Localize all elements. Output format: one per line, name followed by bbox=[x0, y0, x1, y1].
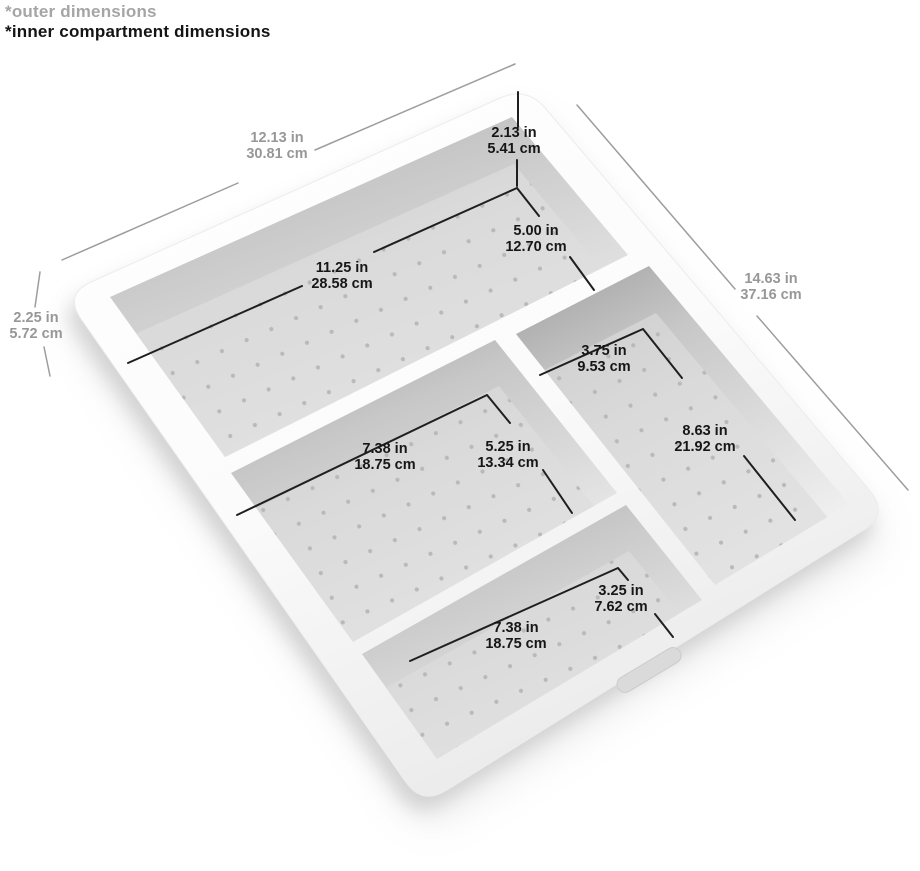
dim-middle-length-in: 5.25 in bbox=[477, 440, 538, 456]
dim-inner-depth-cm: 5.41 cm bbox=[487, 142, 540, 158]
dim-right-length-in: 8.63 in bbox=[674, 424, 735, 440]
dim-right-width-cm: 9.53 cm bbox=[577, 360, 630, 376]
legend-inner-note: *inner compartment dimensions bbox=[5, 23, 271, 42]
dim-outer-width: 12.13 in 30.81 cm bbox=[246, 131, 307, 163]
legend-outer-note: *outer dimensions bbox=[5, 3, 271, 22]
dim-outer-length-in: 14.63 in bbox=[740, 272, 801, 288]
dim-top-length-in: 5.00 in bbox=[505, 224, 566, 240]
dim-middle-compartment-width: 7.38 in 18.75 cm bbox=[354, 442, 415, 474]
dim-middle-compartment-length: 5.25 in 13.34 cm bbox=[477, 440, 538, 472]
dim-top-compartment-length: 5.00 in 12.70 cm bbox=[505, 224, 566, 256]
dim-top-width-in: 11.25 in bbox=[311, 261, 372, 277]
dim-right-length-cm: 21.92 cm bbox=[674, 440, 735, 456]
product-image: *outer dimensions *inner compartment dim… bbox=[0, 0, 920, 871]
dim-outer-width-cm: 30.81 cm bbox=[246, 147, 307, 163]
tray-illustration bbox=[0, 0, 920, 871]
dim-middle-width-in: 7.38 in bbox=[354, 442, 415, 458]
dim-bottom-width-cm: 18.75 cm bbox=[485, 637, 546, 653]
dim-top-length-cm: 12.70 cm bbox=[505, 240, 566, 256]
dim-inner-depth: 2.13 in 5.41 cm bbox=[487, 126, 540, 158]
dim-outer-height-cm: 5.72 cm bbox=[9, 327, 62, 343]
dim-outer-height-in: 2.25 in bbox=[9, 311, 62, 327]
dim-right-compartment-width: 3.75 in 9.53 cm bbox=[577, 344, 630, 376]
dim-inner-depth-in: 2.13 in bbox=[487, 126, 540, 142]
dim-bottom-width-in: 7.38 in bbox=[485, 621, 546, 637]
dim-bottom-length-in: 3.25 in bbox=[594, 584, 647, 600]
dim-outer-length-cm: 37.16 cm bbox=[740, 288, 801, 304]
dim-bottom-compartment-width: 7.38 in 18.75 cm bbox=[485, 621, 546, 653]
dim-outer-width-in: 12.13 in bbox=[246, 131, 307, 147]
dim-right-width-in: 3.75 in bbox=[577, 344, 630, 360]
dim-top-compartment-width: 11.25 in 28.58 cm bbox=[311, 261, 372, 293]
dim-middle-width-cm: 18.75 cm bbox=[354, 458, 415, 474]
dim-outer-height: 2.25 in 5.72 cm bbox=[9, 311, 62, 343]
dim-top-width-cm: 28.58 cm bbox=[311, 277, 372, 293]
dim-bottom-compartment-length: 3.25 in 7.62 cm bbox=[594, 584, 647, 616]
dim-outer-length: 14.63 in 37.16 cm bbox=[740, 272, 801, 304]
dim-bottom-length-cm: 7.62 cm bbox=[594, 600, 647, 616]
legend: *outer dimensions *inner compartment dim… bbox=[5, 3, 271, 41]
dim-middle-length-cm: 13.34 cm bbox=[477, 456, 538, 472]
dim-right-compartment-length: 8.63 in 21.92 cm bbox=[674, 424, 735, 456]
